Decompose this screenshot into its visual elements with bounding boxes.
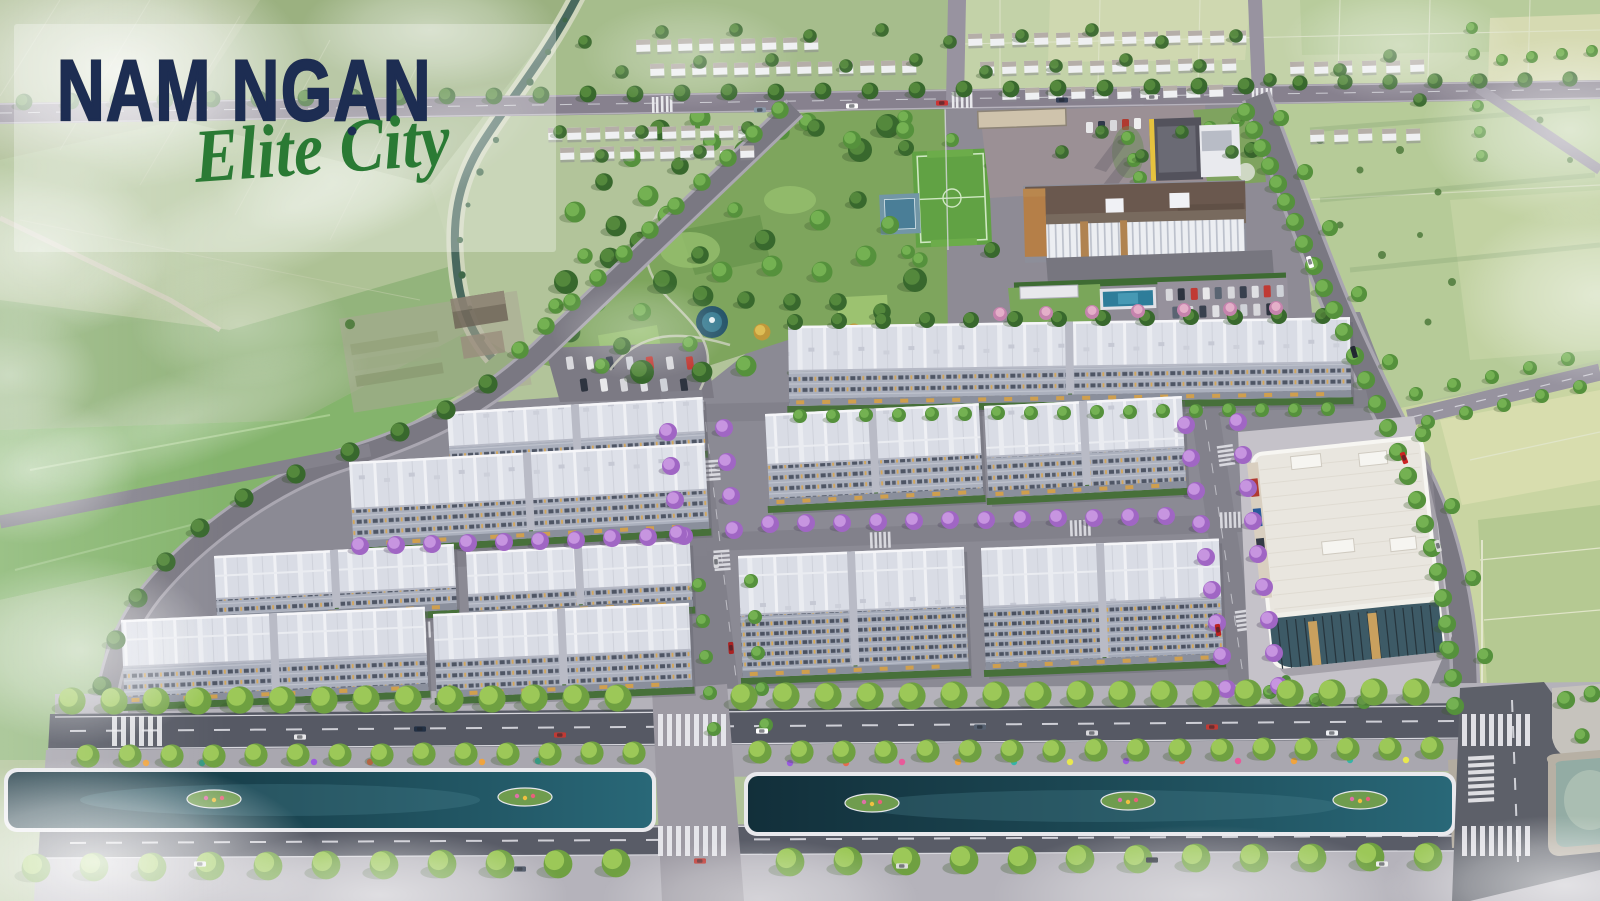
svg-text:Elite City: Elite City [190,97,452,199]
